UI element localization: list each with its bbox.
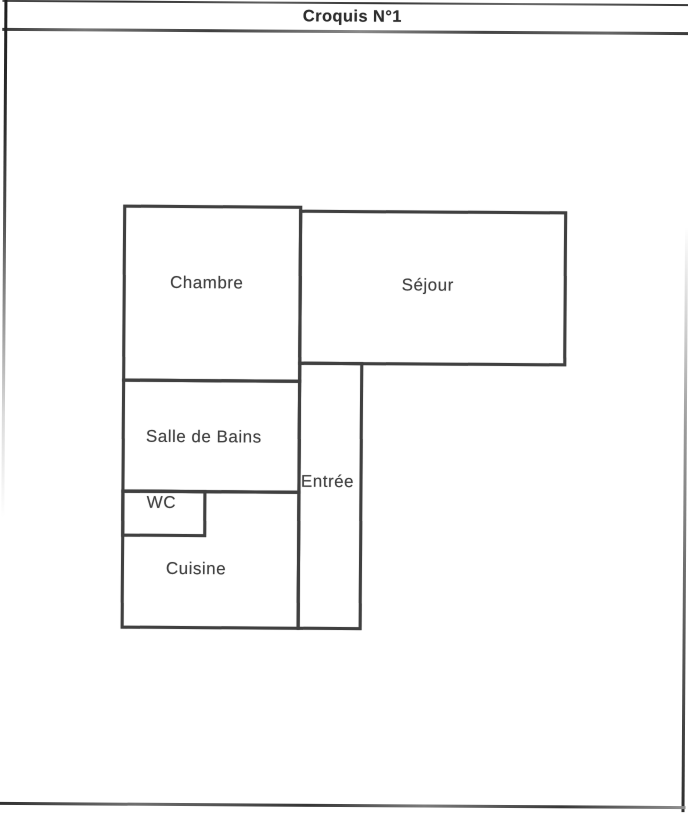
- room-label-entree: Entrée: [301, 472, 354, 492]
- room-label-cuisine: Cuisine: [166, 559, 226, 579]
- room-label-sejour: Séjour: [402, 275, 454, 295]
- room-label-wc: WC: [147, 493, 176, 513]
- room-label-salle-de-bains: Salle de Bains: [146, 427, 262, 448]
- floor-plan: Chambre Séjour Salle de Bains Entrée WC …: [0, 0, 688, 820]
- scanned-page: Croquis N°1 Chambre Séjour Salle de Bain…: [0, 0, 688, 818]
- room-chambre: [122, 205, 302, 383]
- page-content: Croquis N°1 Chambre Séjour Salle de Bain…: [0, 0, 688, 820]
- room-label-chambre: Chambre: [170, 273, 244, 293]
- room-entree: [297, 362, 364, 630]
